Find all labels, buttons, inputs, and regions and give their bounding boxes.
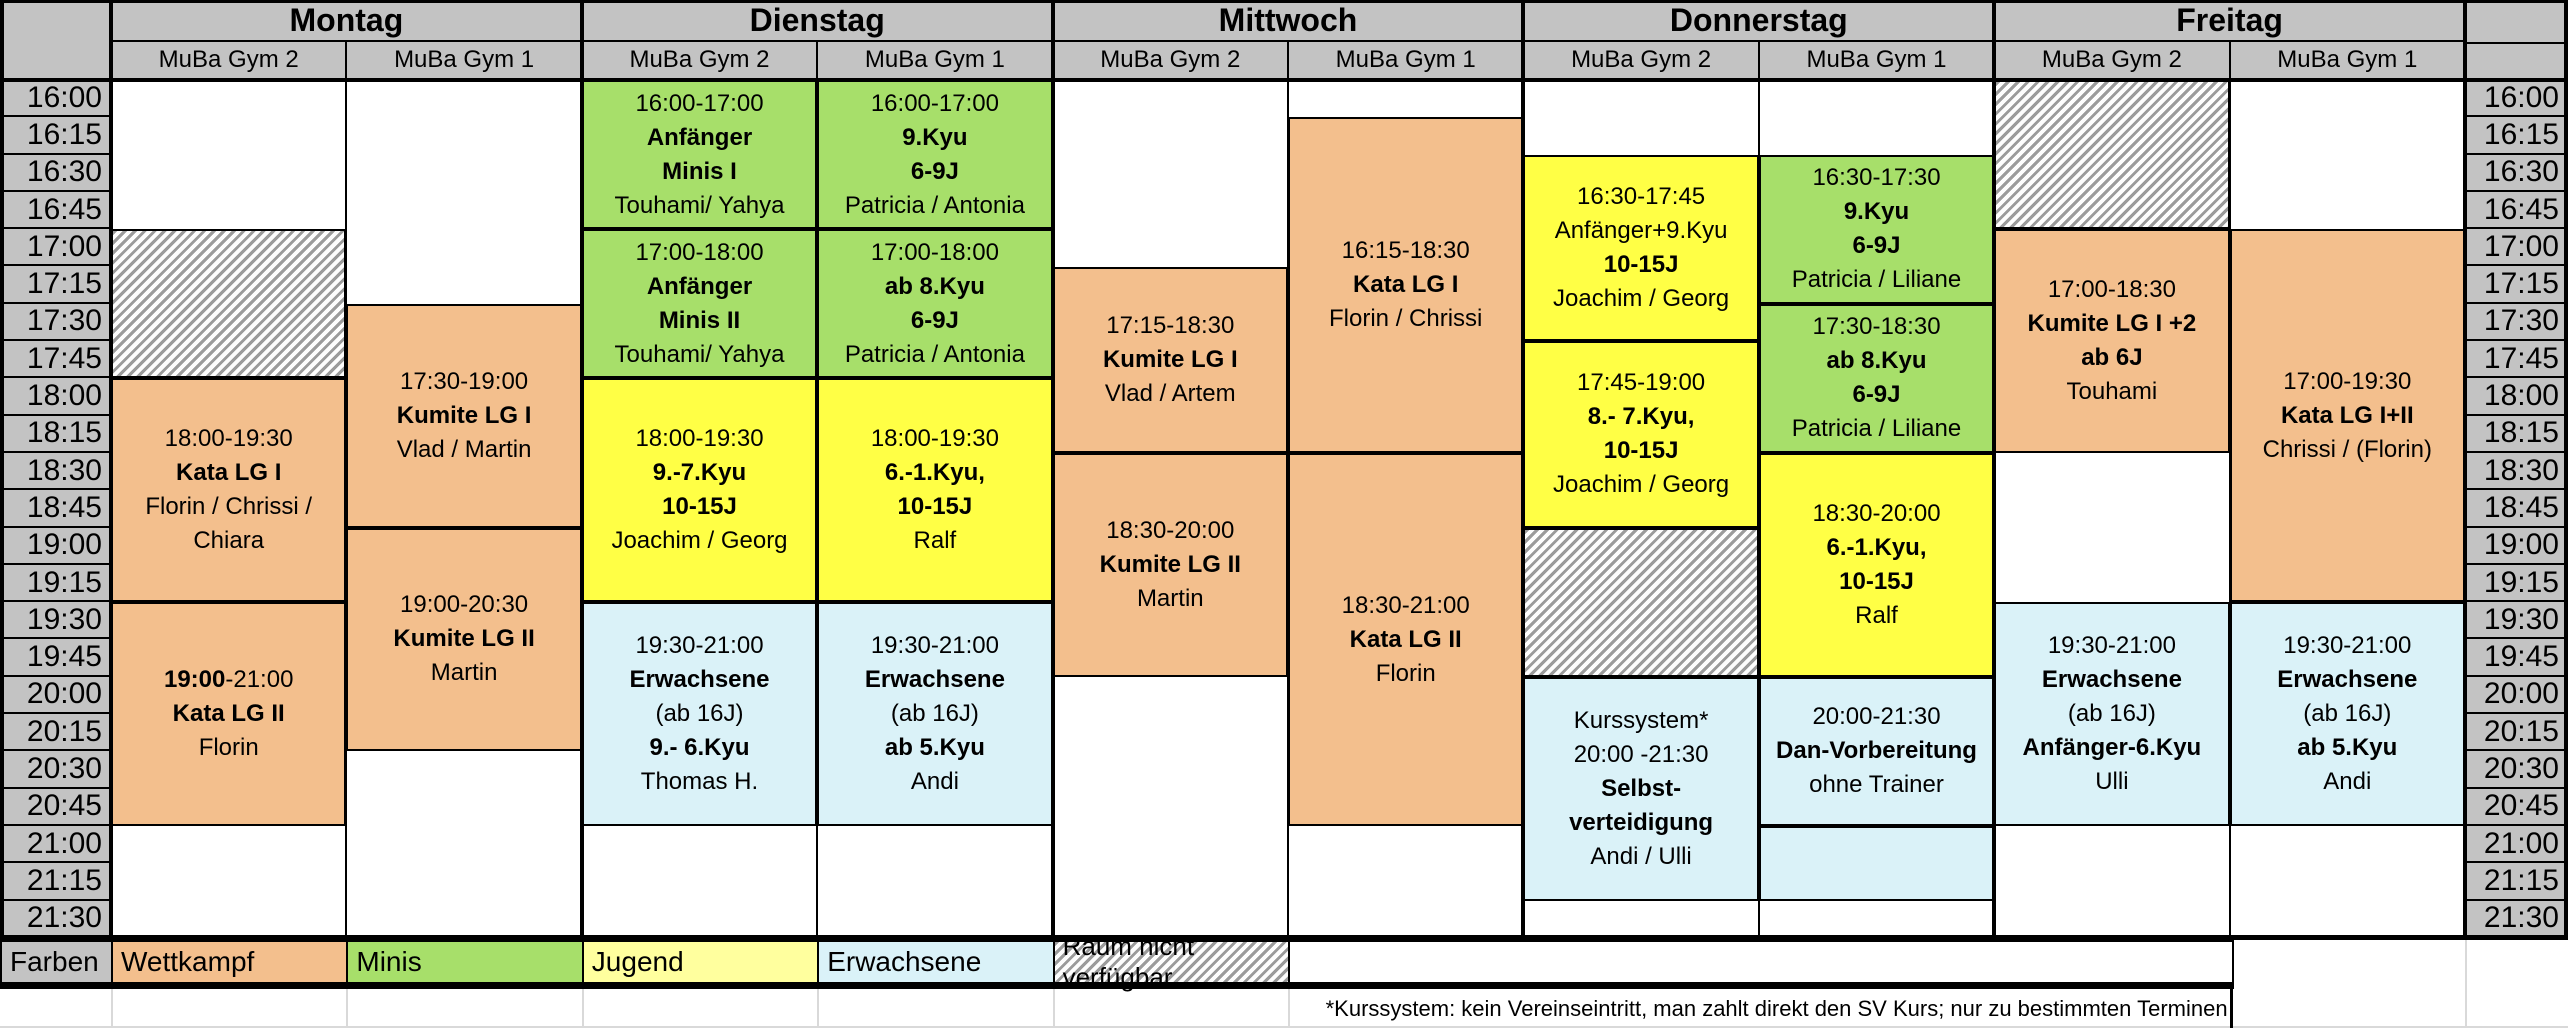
day-header-donnerstag: Donnerstag <box>1523 0 1994 42</box>
time-label: 16:30 <box>0 155 111 192</box>
event-mon-gym2-kata-lg2: 19:00-21:00 Kata LG II Florin <box>111 602 346 826</box>
event-tue-gym1-kyu9: 16:00-17:00 9.Kyu 6-9J Patricia / Antoni… <box>817 80 1052 229</box>
day-header-dienstag: Dienstag <box>582 0 1053 42</box>
gridline <box>1051 0 1055 940</box>
event-wed-gym1-kata-lg2: 18:30-21:00 Kata LG II Florin <box>1288 453 1523 826</box>
gridline <box>0 935 2568 940</box>
unavailable-block-thu-gym2 <box>1523 528 1758 677</box>
weekly-training-schedule: Montag Dienstag Mittwoch Donnerstag Frei… <box>0 0 2568 1028</box>
time-label: 19:45 <box>0 639 111 676</box>
time-label: 17:15 <box>2465 266 2568 303</box>
time-label: 20:15 <box>0 714 111 751</box>
gridline <box>816 42 818 936</box>
time-label: 21:15 <box>0 863 111 900</box>
time-label: 16:45 <box>2465 192 2568 229</box>
gridline <box>582 989 584 1026</box>
time-label: 20:15 <box>2465 714 2568 751</box>
gridline <box>0 0 4 940</box>
time-label: 19:15 <box>0 565 111 602</box>
gridline <box>0 984 2234 989</box>
event-tue-gym2-erwachsene: 19:30-21:00 Erwachsene (ab 16J) 9.- 6.Ky… <box>582 602 817 826</box>
gym-header-tue-gym1: MuBa Gym 1 <box>817 42 1052 78</box>
gridline <box>1758 42 1760 936</box>
time-label: 19:30 <box>0 602 111 639</box>
gridline <box>2230 989 2233 1028</box>
time-label: 18:30 <box>0 453 111 490</box>
gridline <box>111 989 113 1026</box>
day-header-freitag: Freitag <box>1994 0 2465 42</box>
event-tue-gym2-minis2: 17:00-18:00 Anfänger Minis II Touhami/ Y… <box>582 229 817 378</box>
time-label: 18:30 <box>2465 453 2568 490</box>
time-label: 18:45 <box>2465 490 2568 527</box>
gym-header-thu-gym2: MuBa Gym 2 <box>1523 42 1758 78</box>
event-thu-gym2-jugend2: 17:45-19:00 8.- 7.Kyu, 10-15J Joachim / … <box>1523 341 1758 528</box>
event-thu-gym2-jugend1: 16:30-17:45 Anfänger+9.Kyu 10-15J Joachi… <box>1523 155 1758 342</box>
event-tue-gym2-jugend: 18:00-19:30 9.-7.Kyu 10-15J Joachim / Ge… <box>582 378 817 602</box>
legend-wettkampf: Wettkampf <box>111 940 348 984</box>
time-label: 20:45 <box>2465 789 2568 826</box>
gym-header-thu-gym1: MuBa Gym 1 <box>1759 42 1994 78</box>
divider <box>2465 42 2568 44</box>
time-label: 16:15 <box>0 117 111 154</box>
gym-header-mon-gym1: MuBa Gym 1 <box>346 42 581 78</box>
time-label: 19:30 <box>2465 602 2568 639</box>
event-fri-gym2-erwachsene: 19:30-21:00 Erwachsene (ab 16J) Anfänger… <box>1994 602 2229 826</box>
day-header-montag: Montag <box>111 0 582 42</box>
time-label: 20:30 <box>2465 751 2568 788</box>
gym-header-mon-gym2: MuBa Gym 2 <box>111 42 346 78</box>
gym-header-fri-gym1: MuBa Gym 1 <box>2230 42 2465 78</box>
event-thu-gym1-dan-vorbereitung: 20:00-21:30 Dan-Vorbereitung ohne Traine… <box>1759 677 1994 826</box>
time-label: 21:30 <box>0 901 111 936</box>
event-tue-gym2-minis1: 16:00-17:00 Anfänger Minis I Touhami/ Ya… <box>582 80 817 229</box>
unavailable-block-fri-gym2 <box>1994 80 2229 229</box>
time-label: 20:30 <box>0 751 111 788</box>
gridline <box>2564 0 2568 940</box>
gridline <box>1992 0 1996 940</box>
time-label: 21:15 <box>2465 863 2568 900</box>
gym-header-wed-gym2: MuBa Gym 2 <box>1053 42 1288 78</box>
time-label: 17:00 <box>2465 229 2568 266</box>
time-label: 16:00 <box>2465 80 2568 117</box>
legend-title: Farben <box>0 940 113 984</box>
event-tue-gym1-erwachsene: 19:30-21:00 Erwachsene (ab 16J) ab 5.Kyu… <box>817 602 1052 826</box>
time-label: 18:00 <box>2465 378 2568 415</box>
time-label: 16:45 <box>0 192 111 229</box>
kurssystem-footnote: *Kurssystem: kein Vereinseintritt, man z… <box>1053 989 2232 1028</box>
event-fri-gym1-erwachsene: 19:30-21:00 Erwachsene (ab 16J) ab 5.Kyu… <box>2230 602 2465 826</box>
event-tue-gym1-kyu8: 17:00-18:00 ab 8.Kyu 6-9J Patricia / Ant… <box>817 229 1052 378</box>
gridline <box>109 0 113 940</box>
legend-minis: Minis <box>346 940 583 984</box>
corner-top-right <box>2465 0 2568 78</box>
gridline <box>0 78 2568 82</box>
gridline <box>345 42 347 936</box>
event-tue-gym1-jugend: 18:00-19:30 6.-1.Kyu, 10-15J Ralf <box>817 378 1052 602</box>
event-thu-gym2-kurssystem: Kurssystem* 20:00 -21:30 Selbst- verteid… <box>1523 677 1758 901</box>
time-label: 21:00 <box>0 826 111 863</box>
time-label: 17:45 <box>2465 341 2568 378</box>
time-label: 20:00 <box>0 677 111 714</box>
legend-jugend: Jugend <box>582 940 819 984</box>
time-label: 16:15 <box>2465 117 2568 154</box>
event-fri-gym2-kumite: 17:00-18:30 Kumite LG I +2 ab 6J Touhami <box>1994 229 2229 453</box>
time-label: 17:30 <box>0 304 111 341</box>
event-thu-gym1-kyu9: 16:30-17:30 9.Kyu 6-9J Patricia / Lilian… <box>1759 155 1994 304</box>
time-label: 17:30 <box>2465 304 2568 341</box>
event-fri-gym1-kata: 17:00-19:30 Kata LG I+II Chrissi / (Flor… <box>2230 229 2465 602</box>
gym-header-tue-gym2: MuBa Gym 2 <box>582 42 817 78</box>
time-label: 17:00 <box>0 229 111 266</box>
time-label: 21:00 <box>2465 826 2568 863</box>
corner-top-left <box>0 0 111 78</box>
event-thu-gym1-jugend: 18:30-20:00 6.-1.Kyu, 10-15J Ralf <box>1759 453 1994 677</box>
time-label: 16:30 <box>2465 155 2568 192</box>
time-label: 18:45 <box>0 490 111 527</box>
gridline <box>580 0 584 940</box>
time-label: 19:00 <box>2465 528 2568 565</box>
event-mon-gym2-kata-lg1: 18:00-19:30 Kata LG I Florin / Chrissi /… <box>111 378 346 602</box>
gridline <box>0 0 2568 3</box>
event-thu-gym1-empty-blue <box>1759 826 1994 901</box>
time-label: 19:45 <box>2465 639 2568 676</box>
unavailable-block-mon-gym2 <box>111 229 346 378</box>
gridline <box>1521 0 1525 940</box>
time-column-left: 16:00 16:15 16:30 16:45 17:00 17:15 17:3… <box>0 80 111 936</box>
time-label: 18:00 <box>0 378 111 415</box>
event-thu-gym1-kyu8: 17:30-18:30 ab 8.Kyu 6-9J Patricia / Lil… <box>1759 304 1994 453</box>
time-label: 16:00 <box>0 80 111 117</box>
legend-erwachsene: Erwachsene <box>817 940 1054 984</box>
event-wed-gym1-kata-lg1: 16:15-18:30 Kata LG I Florin / Chrissi <box>1288 117 1523 453</box>
legend-empty-cell <box>1288 940 2234 984</box>
time-label: 18:15 <box>2465 416 2568 453</box>
gridline <box>817 989 819 1026</box>
gym-header-wed-gym1: MuBa Gym 1 <box>1288 42 1523 78</box>
time-label: 19:15 <box>2465 565 2568 602</box>
event-wed-gym2-kumite-lg2: 18:30-20:00 Kumite LG II Martin <box>1053 453 1288 677</box>
time-column-right: 16:00 16:15 16:30 16:45 17:00 17:15 17:3… <box>2465 80 2568 936</box>
time-label: 21:30 <box>2465 901 2568 936</box>
time-label: 20:45 <box>0 789 111 826</box>
time-label: 17:45 <box>0 341 111 378</box>
event-mon-gym1-kumite-lg2: 19:00-20:30 Kumite LG II Martin <box>346 528 581 752</box>
event-wed-gym2-kumite-lg1: 17:15-18:30 Kumite LG I Vlad / Artem <box>1053 267 1288 454</box>
gridline <box>346 989 348 1026</box>
time-label: 19:00 <box>0 528 111 565</box>
day-header-mittwoch: Mittwoch <box>1053 0 1524 42</box>
time-label: 18:15 <box>0 416 111 453</box>
gridline <box>2463 0 2467 940</box>
gridline <box>1287 42 1289 936</box>
time-label: 20:00 <box>2465 677 2568 714</box>
gym-header-fri-gym2: MuBa Gym 2 <box>1994 42 2229 78</box>
legend-raum-nicht-verfuegbar: Raum nicht verfügbar <box>1053 940 1290 984</box>
gridline <box>2229 42 2231 936</box>
event-mon-gym1-kumite-lg1: 17:30-19:00 Kumite LG I Vlad / Martin <box>346 304 581 528</box>
gridline <box>2465 940 2467 1026</box>
time-label: 17:15 <box>0 266 111 303</box>
